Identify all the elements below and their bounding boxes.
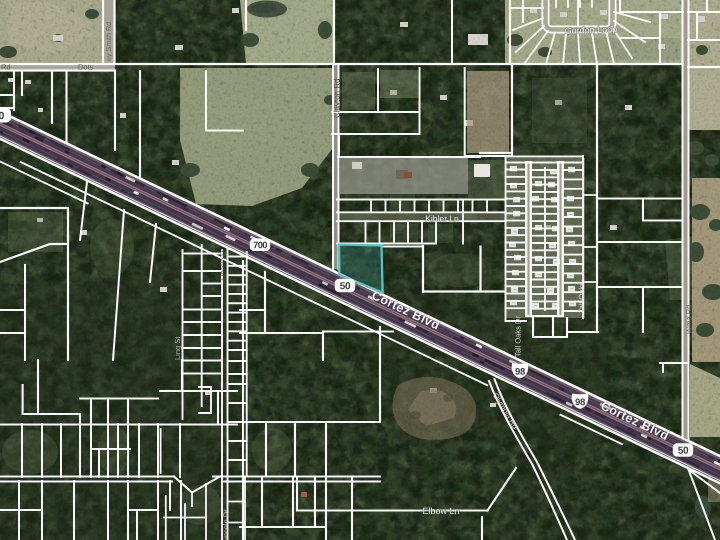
svg-text:700: 700 (253, 240, 267, 250)
svg-text:Lincoln Dr: Lincoln Dr (219, 248, 227, 280)
svg-text:ey Smith Rd: ey Smith Rd (104, 22, 113, 61)
svg-text:98: 98 (515, 367, 525, 378)
svg-text:Dots: Dots (78, 63, 94, 72)
svg-text:50: 50 (340, 281, 351, 292)
svg-text:Clayton Rd: Clayton Rd (333, 78, 342, 118)
svg-text:50: 50 (678, 446, 689, 457)
svg-text:Tall Oaks: Tall Oaks (577, 282, 586, 313)
svg-text:Ling St: Ling St (173, 336, 182, 360)
svg-text:98: 98 (575, 397, 585, 408)
svg-text:Kibler Ln: Kibler Ln (425, 213, 459, 223)
svg-text:Wma Rd: Wma Rd (685, 305, 694, 334)
svg-text:Tall Oaks Dr: Tall Oaks Dr (514, 316, 523, 357)
svg-text:Rd: Rd (1, 63, 11, 72)
svg-text:Gordon Loop: Gordon Loop (564, 24, 617, 36)
svg-text:Lincoln Dr: Lincoln Dr (222, 509, 231, 540)
svg-text:Elbow Ln: Elbow Ln (422, 506, 459, 516)
svg-text:50: 50 (0, 110, 5, 122)
